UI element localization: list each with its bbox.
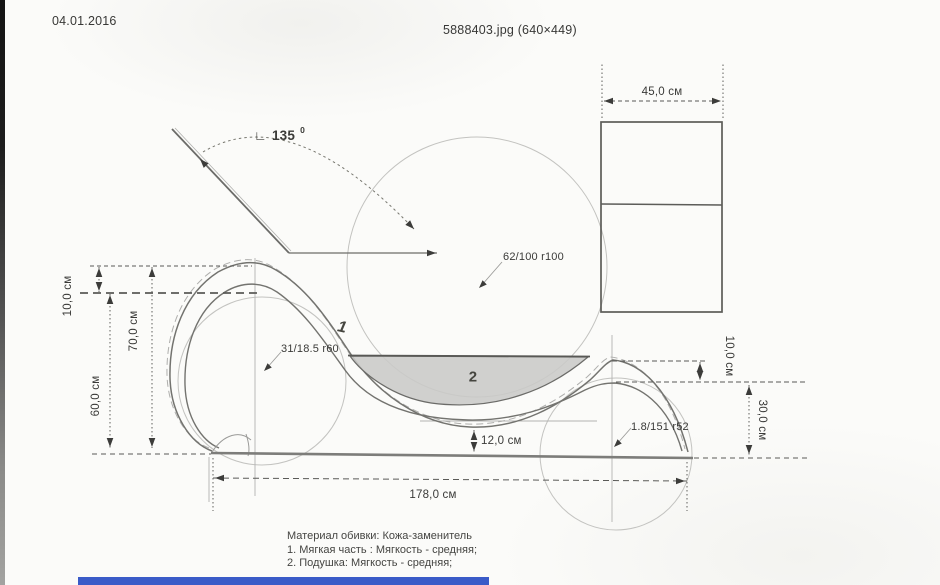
note-part2: 2. Подушка: Мягкость - средняя; bbox=[287, 557, 477, 571]
dim-top-width: 45,0 см bbox=[642, 86, 683, 98]
backrest-angle-detail bbox=[172, 128, 437, 253]
dim-right-height: 30,0 см bbox=[756, 400, 768, 441]
dim-left-offset: 10,0 см bbox=[62, 276, 74, 317]
dim-right-offset: 10,0 см bbox=[723, 336, 735, 377]
ground-line bbox=[211, 453, 693, 458]
width-detail-rectangle bbox=[601, 122, 722, 312]
angle-135-label: ∟ 135 0 bbox=[254, 129, 305, 143]
material-notes: Материал обивки: Кожа-заменитель 1. Мягк… bbox=[287, 530, 477, 571]
cushion-top-edge bbox=[348, 356, 590, 357]
dashed-reference-lines bbox=[80, 101, 807, 481]
angle-degree-sup: 0 bbox=[300, 126, 305, 134]
bottom-blue-bar bbox=[78, 577, 489, 585]
annotation-r100: 62/100 r100 bbox=[503, 251, 564, 263]
scanned-drawing-page: 04.01.2016 5888403.jpg (640×449) bbox=[0, 0, 940, 585]
part-label-2: 2 bbox=[469, 369, 478, 386]
dim-total-length: 178,0 см bbox=[409, 489, 456, 501]
note-part1: 1. Мягкая часть : Мягкость - средняя; bbox=[287, 544, 477, 558]
dotted-dimension-lines bbox=[99, 64, 749, 511]
chaise-technical-drawing bbox=[0, 0, 940, 585]
dim-clearance: 12,0 см bbox=[481, 435, 522, 447]
angle-value: 135 bbox=[272, 129, 295, 143]
dim-left-height-inner: 60,0 см bbox=[90, 376, 102, 417]
annotation-r60: 31/18.5 r60 bbox=[281, 343, 339, 355]
dim-left-height-outer: 70,0 см bbox=[128, 311, 140, 352]
annotation-r52: 1.8/151 r52 bbox=[631, 421, 689, 433]
angle-symbol: ∟ bbox=[254, 129, 267, 142]
note-material: Материал обивки: Кожа-заменитель bbox=[287, 530, 477, 544]
